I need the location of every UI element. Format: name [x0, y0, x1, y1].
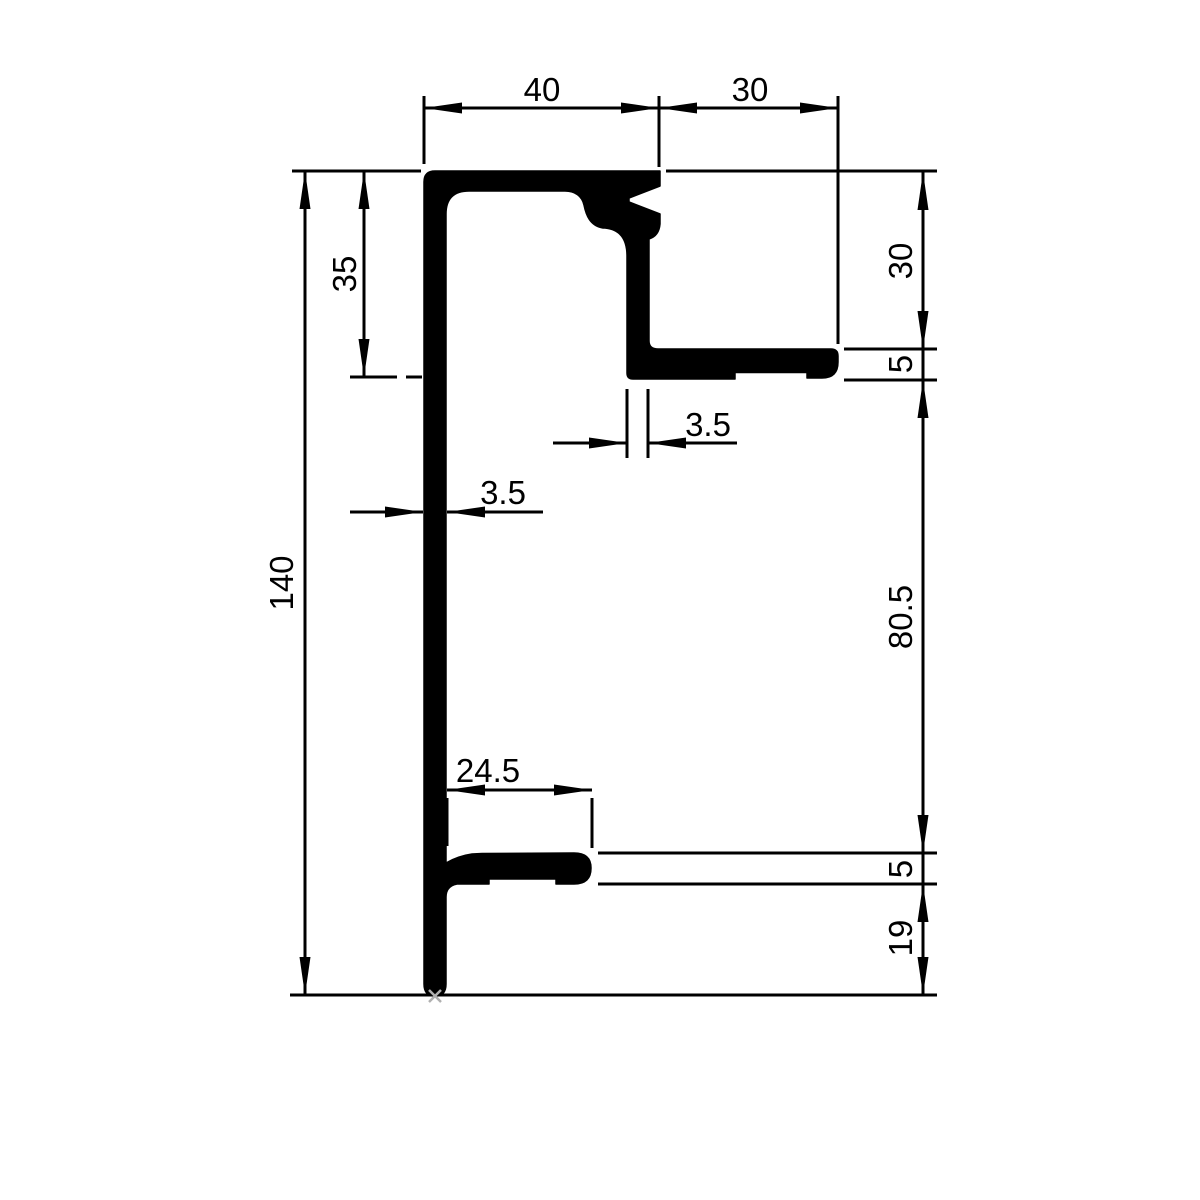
- arrow-up-icon: [918, 884, 929, 922]
- arrow-left-icon: [659, 103, 697, 114]
- arrow-up-icon: [359, 171, 370, 209]
- technical-drawing: 40 30 140 35 30: [0, 0, 1200, 1200]
- arrow-up-icon: [918, 172, 929, 210]
- dim-label-wall-3-5-left: 3.5: [480, 474, 526, 511]
- dim-left-35: 35: [326, 171, 422, 377]
- drawing-canvas: 40 30 140 35 30: [0, 0, 1200, 1200]
- arrow-down-icon: [918, 957, 929, 995]
- arrow-up-icon: [300, 171, 311, 209]
- dim-label-right-5-lower: 5: [882, 860, 919, 878]
- arrow-up-icon: [918, 380, 929, 418]
- arrow-down-icon: [918, 311, 929, 349]
- dim-bottom-24-5: 24.5: [447, 752, 592, 848]
- arrow-down-icon: [918, 815, 929, 853]
- dim-label-right-30: 30: [882, 243, 919, 280]
- arrow-right-icon: [554, 785, 592, 796]
- dim-label-right-80-5: 80.5: [882, 585, 919, 649]
- dim-label-left-35: 35: [326, 256, 363, 293]
- dim-label-wall-3-5-mid: 3.5: [685, 406, 731, 443]
- dim-label-left-140: 140: [263, 555, 300, 610]
- arrow-right-icon: [589, 438, 627, 449]
- dim-label-right-5-upper: 5: [882, 355, 919, 373]
- dim-label-top-40: 40: [524, 71, 561, 108]
- arrow-right-icon: [621, 103, 659, 114]
- dim-wall-3-5-mid: 3.5: [553, 389, 737, 458]
- dim-label-right-19: 19: [882, 920, 919, 957]
- dim-top-30: 30: [659, 71, 838, 344]
- profile-cross-section: [424, 171, 838, 996]
- arrow-down-icon: [359, 339, 370, 377]
- dim-top-40: 40: [424, 71, 659, 167]
- arrow-left-icon: [424, 103, 462, 114]
- arrow-down-icon: [300, 957, 311, 995]
- dim-label-bottom-24-5: 24.5: [456, 752, 520, 789]
- dim-label-top-30: 30: [732, 71, 769, 108]
- arrow-left-icon: [648, 438, 686, 449]
- arrow-right-icon: [385, 507, 423, 518]
- arrow-right-icon: [800, 103, 838, 114]
